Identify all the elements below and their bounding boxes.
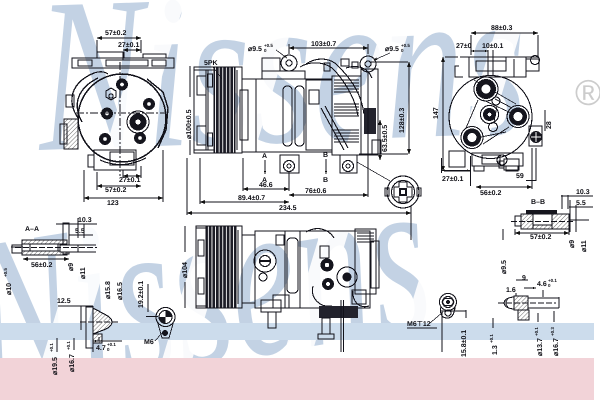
svg-text:128±0.3: 128±0.3 [399, 108, 406, 133]
svg-text:27±0.1: 27±0.1 [442, 176, 463, 183]
svg-text:⌀19.5: ⌀19.5 [52, 357, 59, 375]
svg-text:12.5: 12.5 [57, 298, 71, 305]
svg-text:+0.1: +0.1 [534, 327, 539, 336]
svg-text:⌀16.7: ⌀16.7 [69, 354, 76, 372]
svg-text:5.5: 5.5 [576, 200, 586, 207]
svg-text:57±0.2: 57±0.2 [530, 234, 551, 241]
svg-text:5PK: 5PK [204, 60, 218, 67]
svg-text:89.4±0.7: 89.4±0.7 [238, 195, 265, 202]
svg-text:147: 147 [433, 107, 440, 119]
svg-text:⌀104: ⌀104 [182, 262, 189, 278]
svg-text:+0.5: +0.5 [3, 268, 8, 277]
svg-text:⌀16.7: ⌀16.7 [553, 338, 560, 356]
svg-text:59: 59 [516, 173, 524, 180]
svg-text:0: 0 [548, 283, 551, 288]
svg-text:A: A [262, 153, 267, 160]
svg-text:M6: M6 [144, 339, 154, 346]
svg-text:88±0.3: 88±0.3 [491, 25, 512, 32]
svg-text:B: B [323, 177, 328, 184]
svg-text:⌀13.7: ⌀13.7 [537, 338, 544, 356]
svg-text:56±0.2: 56±0.2 [480, 190, 501, 197]
svg-text:⌀9: ⌀9 [569, 240, 576, 248]
svg-text:⌀100±0.5: ⌀100±0.5 [186, 109, 193, 139]
svg-text:19.2±0.1: 19.2±0.1 [138, 281, 145, 308]
svg-text:®: ® [575, 72, 600, 113]
svg-text:+0.1: +0.1 [66, 341, 71, 350]
svg-text:4.6: 4.6 [537, 281, 547, 288]
svg-text:15.8±0.1: 15.8±0.1 [461, 330, 468, 357]
svg-text:56±0.2: 56±0.2 [31, 262, 52, 269]
svg-text:B: B [323, 152, 328, 159]
svg-text:1.3: 1.3 [492, 345, 499, 355]
svg-text:76±0.6: 76±0.6 [305, 188, 326, 195]
svg-text:9: 9 [522, 275, 526, 282]
svg-text:⌀9.5: ⌀9.5 [248, 46, 262, 53]
svg-text:1.6: 1.6 [506, 287, 516, 294]
svg-text:M6⊤12: M6⊤12 [407, 320, 431, 328]
svg-text:27±0.1: 27±0.1 [118, 42, 139, 49]
svg-text:+0.1: +0.1 [49, 343, 54, 352]
svg-text:⌀9.5: ⌀9.5 [501, 260, 508, 274]
svg-text:B–B: B–B [531, 199, 545, 206]
svg-text:10.3: 10.3 [78, 217, 92, 224]
svg-text:28: 28 [546, 121, 553, 129]
svg-text:+0.3: +0.3 [550, 327, 555, 336]
svg-text:57±0.2: 57±0.2 [105, 30, 126, 37]
svg-text:63.5±0.5: 63.5±0.5 [382, 125, 389, 152]
svg-text:103±0.7: 103±0.7 [311, 41, 336, 48]
svg-text:⌀11: ⌀11 [581, 240, 588, 252]
svg-text:4.7: 4.7 [96, 345, 106, 352]
svg-text:⌀15.8: ⌀15.8 [105, 281, 112, 299]
svg-text:5.5: 5.5 [75, 228, 85, 235]
svg-text:46.6: 46.6 [259, 182, 273, 189]
svg-text:+0.1: +0.1 [489, 334, 494, 343]
svg-text:27±0.1: 27±0.1 [119, 177, 140, 184]
svg-text:⌀10: ⌀10 [6, 283, 13, 295]
svg-text:⌀9.5: ⌀9.5 [385, 46, 399, 53]
svg-text:⌀9: ⌀9 [68, 263, 75, 271]
svg-text:⌀16.5: ⌀16.5 [117, 282, 124, 300]
svg-text:10±0.1: 10±0.1 [482, 43, 503, 50]
svg-text:10.3: 10.3 [576, 189, 590, 196]
svg-text:⌀11: ⌀11 [80, 267, 87, 279]
svg-text:234.5: 234.5 [279, 205, 297, 212]
svg-text:A–A: A–A [25, 226, 39, 233]
svg-text:123: 123 [107, 200, 119, 207]
svg-text:57±0.2: 57±0.2 [105, 187, 126, 194]
svg-text:27±0: 27±0 [456, 43, 472, 50]
